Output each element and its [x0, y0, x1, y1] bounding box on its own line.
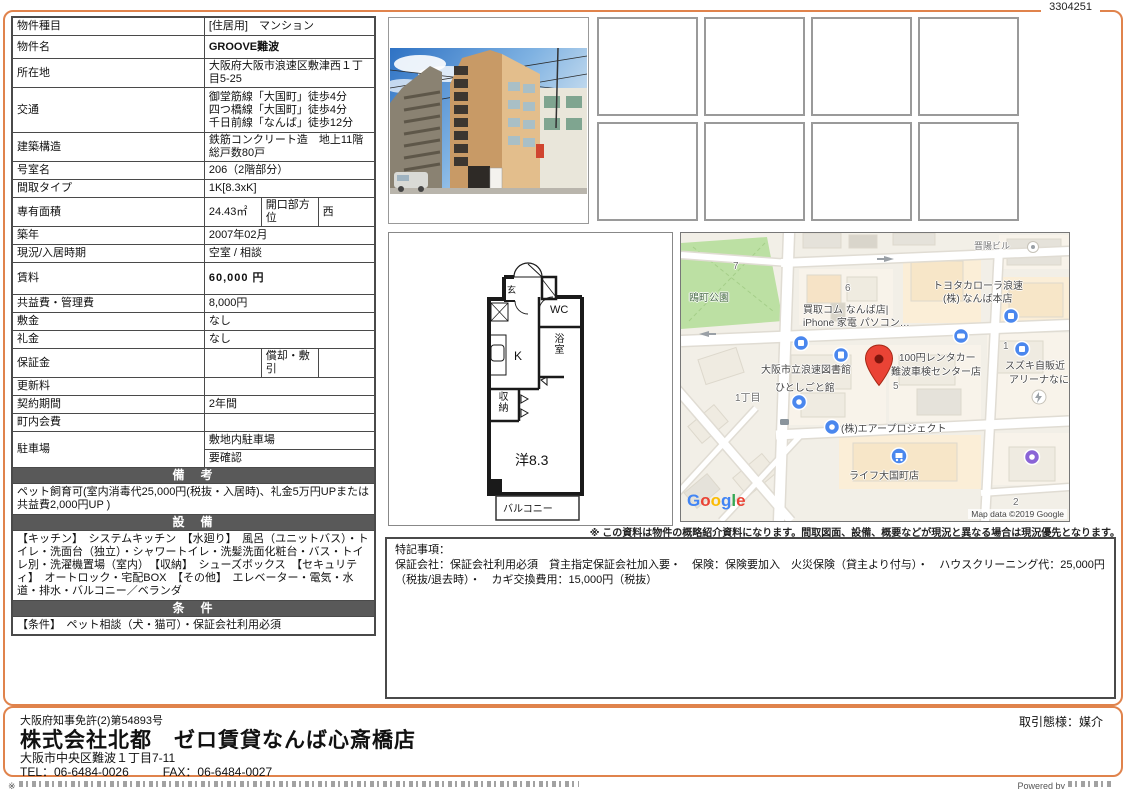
photo-placeholder	[811, 17, 912, 116]
map-label-suzuki: スズキ自販近	[1005, 357, 1065, 372]
row-label: 駐車場	[12, 432, 204, 468]
map-label-building: 晋陽ビル	[974, 239, 1010, 252]
property-table: 物件種目 [住居用] マンション 物件名 GROOVE難波 所在地 大阪府大阪市…	[11, 16, 376, 636]
clipped-powered-by: Powered by	[1017, 781, 1114, 789]
clipped-disclaimer-left: ※	[8, 781, 579, 789]
row-value: 2007年02月	[204, 227, 375, 245]
map-label-suzuki-2: アリーナなに	[1009, 371, 1069, 386]
access-line: 千日前線「なんば」徒歩12分	[209, 117, 370, 130]
table-row-renewal: 更新料	[12, 378, 375, 396]
row-label: 現況/入居時期	[12, 245, 204, 263]
special-notes-title: 特記事項：	[395, 543, 1106, 558]
row-label: 町内会費	[12, 414, 204, 432]
row-label: 共益費・管理費	[12, 295, 204, 313]
park-area	[681, 237, 783, 329]
row-value	[318, 349, 375, 378]
rent-amount: 60,000 円	[204, 263, 375, 295]
photo-placeholder	[597, 122, 698, 221]
row-label: 専有面積	[12, 198, 204, 227]
equipment-text: 【キッチン】 システムキッチン 【水廻り】 風呂（ユニットバス）・トイレ・洗面台…	[12, 531, 375, 601]
row-label: 賃料	[12, 263, 204, 295]
row-label: 交通	[12, 88, 204, 133]
row-value: 1K[8.3xK]	[204, 180, 375, 198]
plan-label-balcony: バルコニー	[503, 500, 553, 515]
map-label-kaitori-2: iPhone 家電 パソコン…	[803, 314, 910, 329]
row-value: 鉄筋コンクリート造 地上11階 総戸数80戸	[204, 133, 375, 162]
row-value	[204, 349, 261, 378]
table-row-access: 交通 御堂筋線「大国町」徒歩4分 四つ橋線「大国町」徒歩4分 千日前線「なんば」…	[12, 88, 375, 133]
map-block-number: 6	[845, 283, 851, 294]
photo-placeholder	[704, 122, 805, 221]
row-value: 8,000円	[204, 295, 375, 313]
shop-pin-icon	[1015, 342, 1030, 357]
special-notes-box: 特記事項： 保証会社：保証会社利用必須 貸主指定保証会社加入要・ 保険：保険要加…	[385, 537, 1116, 699]
agency-fax: FAX：06-6484-0027	[163, 765, 272, 779]
agency-footer: 大阪府知事免許(2)第54893号 株式会社北都 ゼロ賃貸なんば心斎橋店 大阪市…	[3, 706, 1123, 777]
bus-stop-icon	[780, 419, 789, 425]
table-row-type: 物件種目 [住居用] マンション	[12, 17, 375, 36]
table-row-neighborhood: 町内会費	[12, 414, 375, 432]
table-row-built: 築年 2007年02月	[12, 227, 375, 245]
table-row-address: 所在地 大阪府大阪市浪速区敷津西１丁目5-25	[12, 59, 375, 88]
plan-label-entrance: 玄	[507, 283, 516, 296]
map-label-park: 鴎町公園	[689, 289, 729, 304]
google-logo: Google	[687, 491, 746, 511]
map-label-library-2: ひとしごと館	[775, 379, 835, 394]
row-label: 開口部方位	[261, 198, 318, 227]
row-label: 敷金	[12, 313, 204, 331]
plan-label-room: 洋8.3	[515, 450, 548, 470]
section-title: 設 備	[12, 515, 375, 531]
deal-type: 取引態様：媒介	[1019, 713, 1103, 730]
row-label: 償却・敷引	[261, 349, 318, 378]
row-label: 築年	[12, 227, 204, 245]
property-listing-sheet: 3304251 物件種目 [住居用] マンション 物件名 GROOVE難波 所在…	[0, 0, 1125, 789]
map-block-number: 5	[893, 381, 899, 392]
table-row-term: 契約期間 2年間	[12, 396, 375, 414]
row-label: 礼金	[12, 331, 204, 349]
row-value: 206（2階部分）	[204, 162, 375, 180]
row-value: [住居用] マンション	[204, 17, 375, 36]
floorplan-frame: 玄 WC K 浴室 収納 洋8.3 バルコニー	[388, 232, 673, 526]
map-block-number: 1	[1003, 341, 1009, 352]
section-body-equipment: 【キッチン】 システムキッチン 【水廻り】 風呂（ユニットバス）・トイレ・洗面台…	[12, 531, 375, 601]
access-line: 四つ橋線「大国町」徒歩4分	[209, 104, 370, 117]
building-photo	[390, 48, 587, 194]
conditions-text: 【条件】 ペット相談（犬・猫可）・保証会社利用必須	[12, 617, 375, 636]
photo-placeholder	[918, 122, 1019, 221]
map-block-number: 2	[1013, 497, 1019, 508]
row-value: 2年間	[204, 396, 375, 414]
section-body-remarks: ペット飼育可(室内消毒代25,000円(税抜・入居時)、礼金5万円UPまたは共益…	[12, 484, 375, 515]
row-value: なし	[204, 313, 375, 331]
section-header-conditions: 条 件	[12, 601, 375, 617]
supermarket-pin-icon	[891, 448, 907, 464]
row-value: 御堂筋線「大国町」徒歩4分 四つ橋線「大国町」徒歩4分 千日前線「なんば」徒歩1…	[204, 88, 375, 133]
row-label: 建築構造	[12, 133, 204, 162]
row-label: 物件種目	[12, 17, 204, 36]
map-label-rentacar: 100円レンタカー	[899, 349, 976, 364]
row-value: 西	[318, 198, 375, 227]
remarks-text: ペット飼育可(室内消毒代25,000円(税抜・入居時)、礼金5万円UPまたは共益…	[12, 484, 375, 515]
place-pin-icon	[792, 395, 807, 410]
section-body-conditions: 【条件】 ペット相談（犬・猫可）・保証会社利用必須	[12, 617, 375, 636]
section-header-remarks: 備 考	[12, 468, 375, 484]
table-row-layout-type: 間取タイプ 1K[8.3xK]	[12, 180, 375, 198]
agency-contact: TEL：06-6484-0026FAX：06-6484-0027	[20, 763, 306, 780]
row-value: 大阪府大阪市浪速区敷津西１丁目5-25	[204, 59, 375, 88]
map-label-library: 大阪市立浪速図書館	[761, 361, 851, 376]
map-label-toyota-2: (株) なんば本店	[943, 290, 1012, 305]
property-name: GROOVE難波	[204, 36, 375, 59]
main-photo-frame	[388, 17, 589, 224]
row-value: 要確認	[204, 450, 375, 468]
row-label: 所在地	[12, 59, 204, 88]
charging-pin-icon	[1032, 390, 1046, 404]
photo-placeholder-grid	[597, 17, 1019, 221]
agency-tel: TEL：06-6484-0026	[20, 765, 129, 779]
row-value	[204, 414, 375, 432]
car-pin-icon	[954, 329, 969, 344]
table-row-fees: 共益費・管理費 8,000円	[12, 295, 375, 313]
map-attribution: Map data ©2019 Google	[968, 509, 1067, 519]
map-label-rentacar-2: 難波車検センター店	[891, 363, 981, 378]
photo-placeholder	[811, 122, 912, 221]
row-value: 敷地内駐車場	[204, 432, 375, 450]
map-label-chome: 1丁目	[735, 389, 761, 404]
table-row-name: 物件名 GROOVE難波	[12, 36, 375, 59]
photo-placeholder	[597, 17, 698, 116]
table-row-parking: 駐車場 敷地内駐車場	[12, 432, 375, 450]
photo-placeholder	[704, 17, 805, 116]
plan-label-bath: 浴室	[550, 333, 565, 355]
small-place-pin-icon	[1028, 242, 1039, 253]
section-title: 備 考	[12, 468, 375, 484]
row-value: 24.43㎡	[204, 198, 261, 227]
table-row-status: 現況/入居時期 空室 / 相談	[12, 245, 375, 263]
access-line: 御堂筋線「大国町」徒歩4分	[209, 91, 370, 104]
table-row-area: 専有面積 24.43㎡ 開口部方位 西	[12, 198, 375, 227]
parking-pin-icon	[1025, 450, 1040, 465]
map-label-life-store: ライフ大国町店	[849, 467, 919, 482]
row-label: 契約期間	[12, 396, 204, 414]
row-label: 更新料	[12, 378, 204, 396]
document-number: 3304251	[1041, 1, 1100, 14]
row-value	[204, 378, 375, 396]
table-row-key-money: 礼金 なし	[12, 331, 375, 349]
floorplan-drawing	[484, 249, 587, 523]
table-row-deposit: 敷金 なし	[12, 313, 375, 331]
company-pin-icon	[825, 420, 840, 435]
row-label: 号室名	[12, 162, 204, 180]
map-block-number: 7	[733, 261, 739, 272]
photo-placeholder	[918, 17, 1019, 116]
row-label: 保証金	[12, 349, 204, 378]
row-label: 間取タイプ	[12, 180, 204, 198]
section-header-equipment: 設 備	[12, 515, 375, 531]
table-row-room-no: 号室名 206（2階部分）	[12, 162, 375, 180]
plan-label-kitchen: K	[514, 349, 522, 363]
clipped-disclaimer-strip: ※ Powered by	[8, 781, 1118, 789]
shop-pin-icon	[794, 336, 809, 351]
map-label-air-project: (株)エアープロジェクト	[841, 420, 946, 435]
plan-label-closet: 収納	[494, 391, 509, 413]
plan-label-wc: WC	[550, 304, 568, 316]
special-notes-body: 保証会社：保証会社利用必須 貸主指定保証会社加入要・ 保険：保険要加入 火災保険…	[395, 558, 1106, 588]
section-title: 条 件	[12, 601, 375, 617]
row-value: なし	[204, 331, 375, 349]
row-label: 物件名	[12, 36, 204, 59]
location-map: 7 鴎町公園 買取コム なんば店| iPhone 家電 パソコン… トヨタカロー…	[680, 232, 1070, 522]
row-value: 空室 / 相談	[204, 245, 375, 263]
table-row-rent: 賃料 60,000 円	[12, 263, 375, 295]
table-row-structure: 建築構造 鉄筋コンクリート造 地上11階 総戸数80戸	[12, 133, 375, 162]
table-row-guarantee: 保証金 償却・敷引	[12, 349, 375, 378]
shop-pin-icon	[1004, 309, 1019, 324]
